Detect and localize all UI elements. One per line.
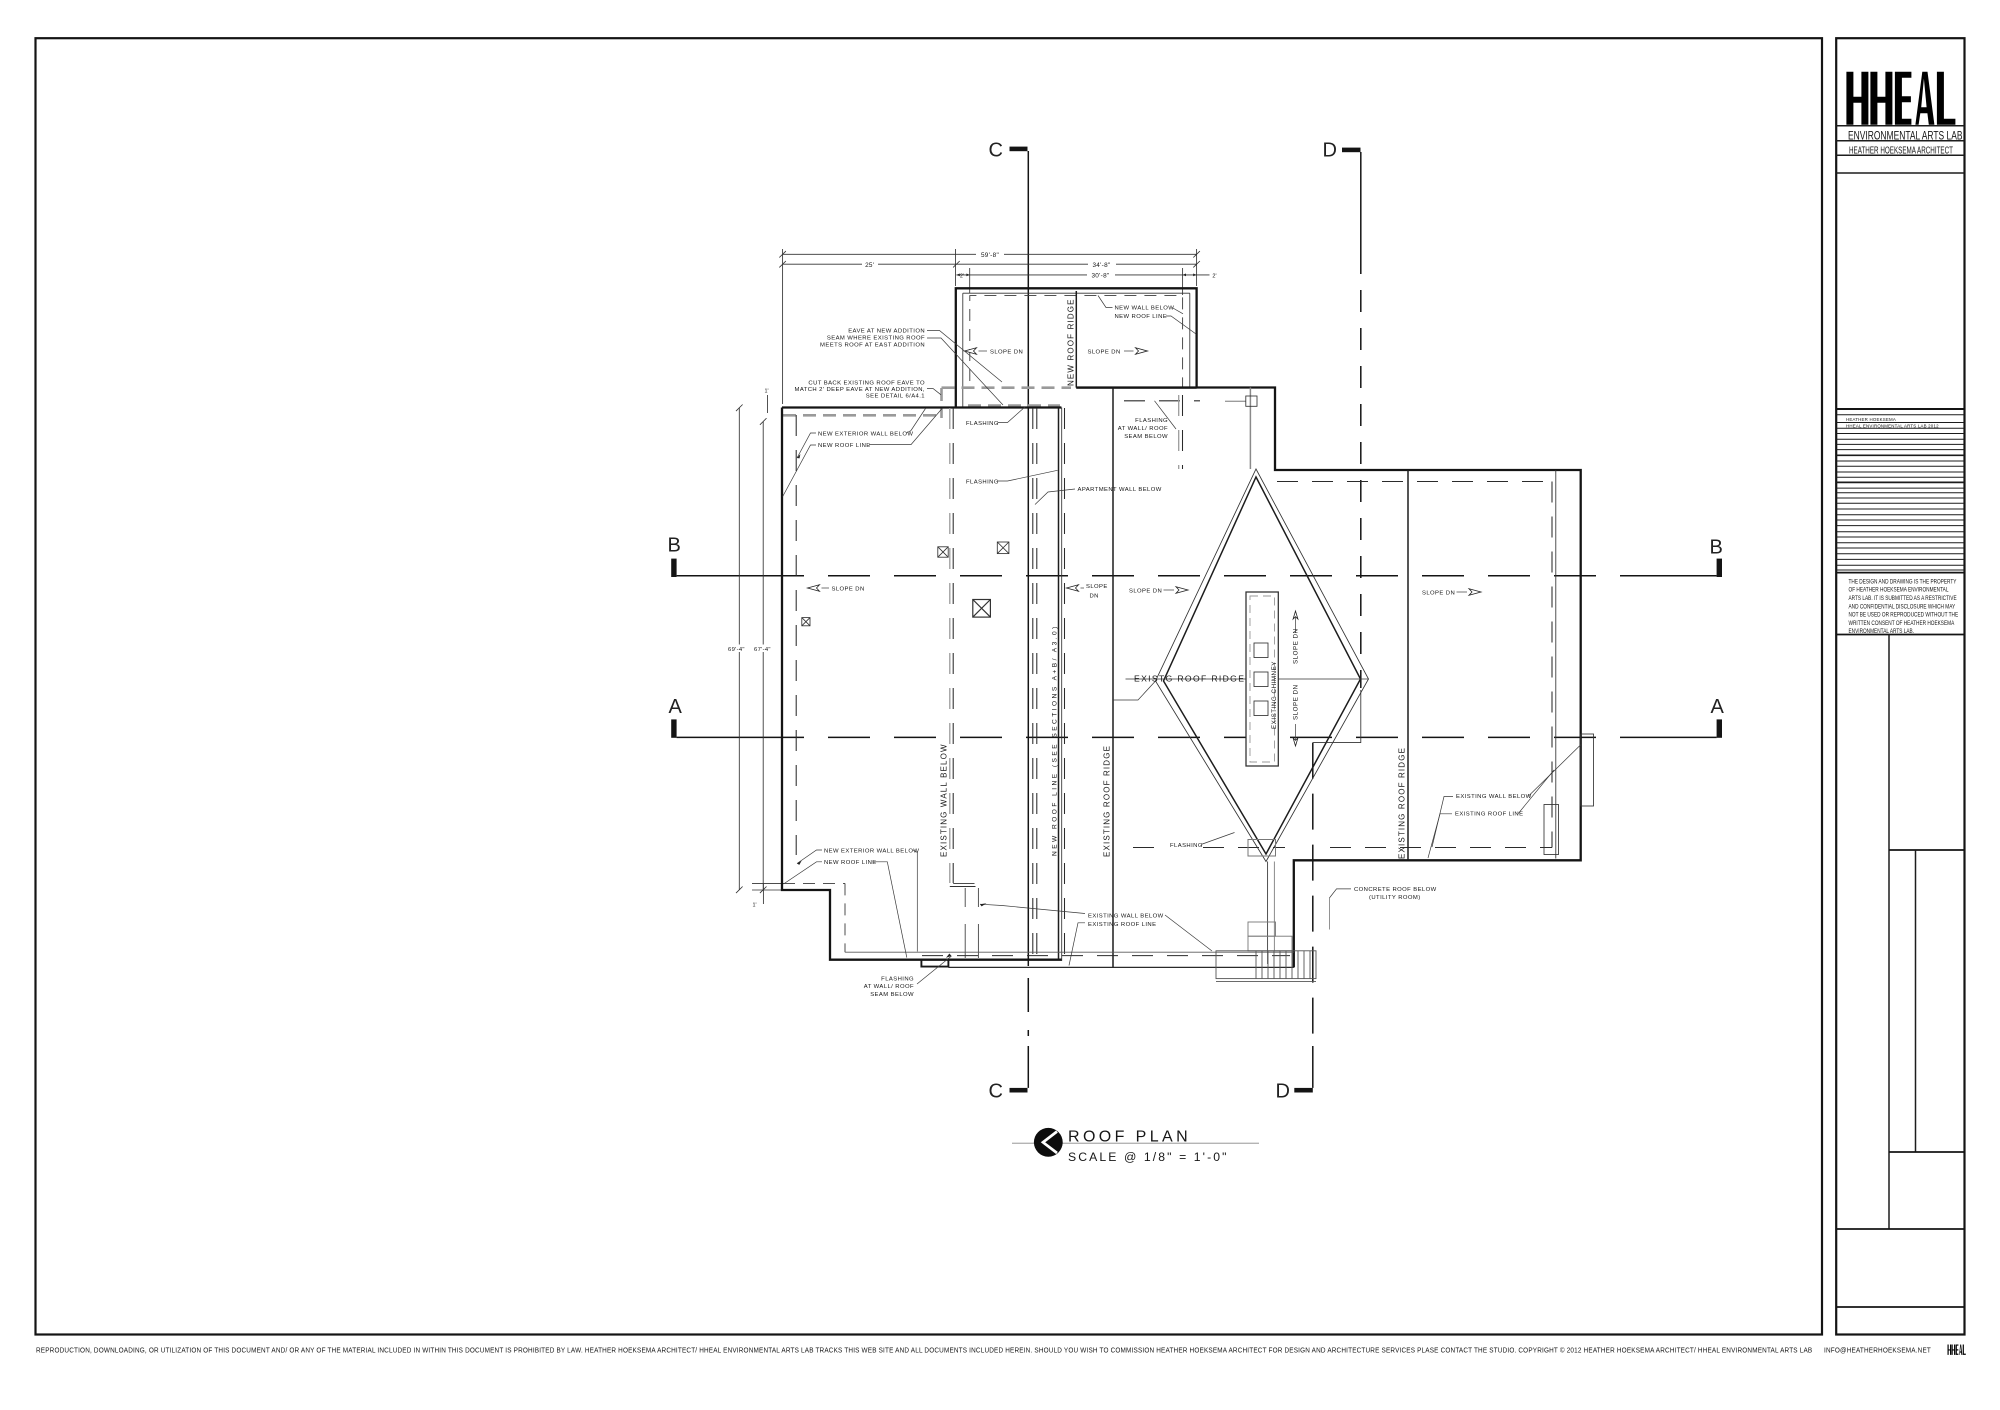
svg-text:EAVE AT NEW ADDITION: EAVE AT NEW ADDITION: [848, 329, 925, 335]
svg-text:1': 1': [753, 903, 757, 909]
svg-text:25': 25': [865, 262, 874, 269]
svg-text:AND CONFIDENTIAL DISCLOSURE WH: AND CONFIDENTIAL DISCLOSURE WHICH MAY: [1849, 604, 1956, 611]
svg-text:SLOPE DN: SLOPE DN: [1422, 590, 1455, 596]
svg-text:69'-4": 69'-4": [728, 647, 745, 653]
svg-text:ARTS LAB. IT IS SUBMITTED AS: ARTS LAB. IT IS SUBMITTED AS A RESTRICTI…: [1849, 595, 1957, 602]
svg-text:FLASHING: FLASHING: [966, 479, 999, 485]
svg-text:FLASHING: FLASHING: [1135, 418, 1168, 424]
svg-text:SLOPE DN: SLOPE DN: [1129, 588, 1162, 594]
svg-text:2': 2': [1212, 274, 1216, 280]
svg-text:EXISTING ROOF RIDGE: EXISTING ROOF RIDGE: [1398, 747, 1407, 859]
svg-text:NEW EXTERIOR WALL BELOW: NEW EXTERIOR WALL BELOW: [818, 431, 913, 437]
svg-text:D: D: [1323, 140, 1337, 162]
svg-text:SLOPE: SLOPE: [1086, 584, 1108, 590]
svg-text:D: D: [1276, 1081, 1290, 1103]
svg-text:34'-8": 34'-8": [1092, 262, 1110, 269]
svg-text:AT WALL/ ROOF: AT WALL/ ROOF: [864, 984, 914, 990]
svg-text:SLOPE DN: SLOPE DN: [1293, 628, 1300, 664]
svg-text:NEW ROOF RIDGE: NEW ROOF RIDGE: [1067, 298, 1076, 386]
svg-text:EXISTG ROOF RIDGE: EXISTG ROOF RIDGE: [1134, 674, 1245, 684]
svg-text:1': 1': [765, 389, 769, 395]
svg-text:EXISTING ROOF LINE: EXISTING ROOF LINE: [1088, 922, 1156, 928]
svg-text:EXISTING WALL BELOW: EXISTING WALL BELOW: [1456, 794, 1532, 800]
svg-text:EXISTING ROOF LINE: EXISTING ROOF LINE: [1455, 811, 1523, 817]
svg-text:NEW ROOF LINE: NEW ROOF LINE: [824, 860, 877, 866]
svg-text:FLASHING: FLASHING: [1170, 843, 1203, 849]
svg-text:HHEAL ENVIRONMENTAL ARTS LAB 2: HHEAL ENVIRONMENTAL ARTS LAB 2012: [1846, 424, 1939, 429]
svg-text:67'-4": 67'-4": [754, 647, 771, 653]
svg-text:A: A: [1711, 696, 1725, 718]
svg-text:SEE DETAIL 6/A4.1: SEE DETAIL 6/A4.1: [866, 393, 925, 399]
svg-text:DN: DN: [1090, 594, 1099, 600]
svg-text:NOT BE USED OR REPRODUCED WITH: NOT BE USED OR REPRODUCED WITHOUT THE: [1849, 612, 1959, 619]
svg-text:SLOPE DN: SLOPE DN: [1293, 684, 1300, 720]
svg-text:MATCH 2' DEEP EAVE AT NEW ADDI: MATCH 2' DEEP EAVE AT NEW ADDITION,: [795, 387, 926, 393]
svg-text:THE DESIGN AND DRAWING IS THE: THE DESIGN AND DRAWING IS THE PROPERTY: [1849, 579, 1957, 586]
svg-text:EXISTING WALL BELOW: EXISTING WALL BELOW: [940, 743, 949, 857]
svg-text:SLOPE DN: SLOPE DN: [1088, 349, 1121, 355]
svg-text:OF HEATHER HOEKSEMA ENVIRONMEN: OF HEATHER HOEKSEMA ENVIRONMENTAL: [1849, 587, 1949, 594]
svg-text:EXISTING WALL BELOW: EXISTING WALL BELOW: [1088, 913, 1164, 919]
svg-text:59'-8": 59'-8": [981, 252, 999, 259]
svg-text:NEW EXTERIOR WALL BELOW: NEW EXTERIOR WALL BELOW: [824, 848, 919, 854]
svg-text:B: B: [1710, 537, 1723, 559]
svg-text:FLASHING: FLASHING: [966, 421, 999, 427]
svg-text:30'-8": 30'-8": [1091, 273, 1109, 280]
svg-text:CONCRETE ROOF BELOW: CONCRETE ROOF BELOW: [1354, 887, 1437, 893]
svg-text:CUT BACK EXISTING ROOF EAVE TO: CUT BACK EXISTING ROOF EAVE TO: [808, 381, 925, 387]
svg-text:SEAM WHERE EXISTING ROOF: SEAM WHERE EXISTING ROOF: [827, 336, 925, 342]
svg-text:EXISTING ROOF RIDGE: EXISTING ROOF RIDGE: [1103, 745, 1112, 857]
svg-text:(UTILITY ROOM): (UTILITY ROOM): [1369, 895, 1421, 901]
svg-text:A: A: [669, 696, 683, 718]
svg-text:AT WALL/ ROOF: AT WALL/ ROOF: [1118, 426, 1168, 432]
svg-text:C: C: [989, 140, 1003, 162]
svg-text:REPRODUCTION, DOWNLOADING, OR: REPRODUCTION, DOWNLOADING, OR UTILIZATIO…: [36, 1346, 1931, 1355]
svg-text:SEAM BELOW: SEAM BELOW: [870, 992, 914, 998]
svg-text:B: B: [668, 535, 681, 557]
svg-text:SCALE @ 1/8" = 1'-0": SCALE @ 1/8" = 1'-0": [1068, 1150, 1229, 1164]
svg-text:EXISTING CHIMNEY: EXISTING CHIMNEY: [1271, 661, 1278, 729]
svg-text:FLASHING: FLASHING: [881, 976, 914, 982]
svg-text:WRITTEN CONSENT OF HEATHER HOE: WRITTEN CONSENT OF HEATHER HOEKSEMA: [1849, 620, 1955, 627]
svg-text:NEW ROOF LINE: NEW ROOF LINE: [818, 443, 871, 449]
svg-text:SLOPE DN: SLOPE DN: [990, 349, 1023, 355]
svg-text:2': 2': [960, 273, 964, 279]
svg-text:SEAM BELOW: SEAM BELOW: [1124, 434, 1168, 440]
svg-text:C: C: [989, 1081, 1003, 1103]
svg-text:MEETS ROOF AT EAST ADDITION: MEETS ROOF AT EAST ADDITION: [820, 343, 925, 349]
svg-text:HEATHER HOEKSEMA: HEATHER HOEKSEMA: [1846, 417, 1896, 422]
svg-text:NEW WALL BELOW: NEW WALL BELOW: [1115, 306, 1175, 312]
svg-text:NEW ROOF LINE: NEW ROOF LINE: [1115, 314, 1168, 320]
svg-text:APARTMENT WALL BELOW: APARTMENT WALL BELOW: [1078, 487, 1162, 493]
svg-text:SLOPE DN: SLOPE DN: [832, 586, 865, 592]
svg-text:ROOF PLAN: ROOF PLAN: [1068, 1128, 1191, 1145]
svg-text:NEW ROOF LINE (SEE SECTIONS A+: NEW ROOF LINE (SEE SECTIONS A+B/ A3.0): [1052, 624, 1059, 856]
